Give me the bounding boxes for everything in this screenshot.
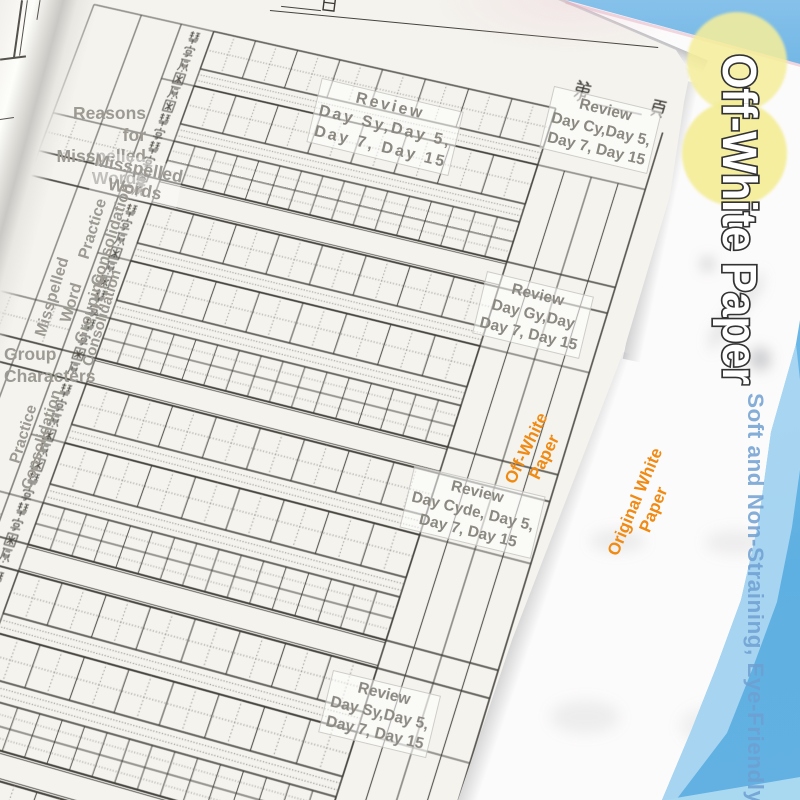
svg-text:Soft and Non-Straining, Eye-Fr: Soft and Non-Straining, Eye-Friendly: [743, 393, 768, 800]
svg-text:Off-White Paper: Off-White Paper: [713, 54, 767, 385]
